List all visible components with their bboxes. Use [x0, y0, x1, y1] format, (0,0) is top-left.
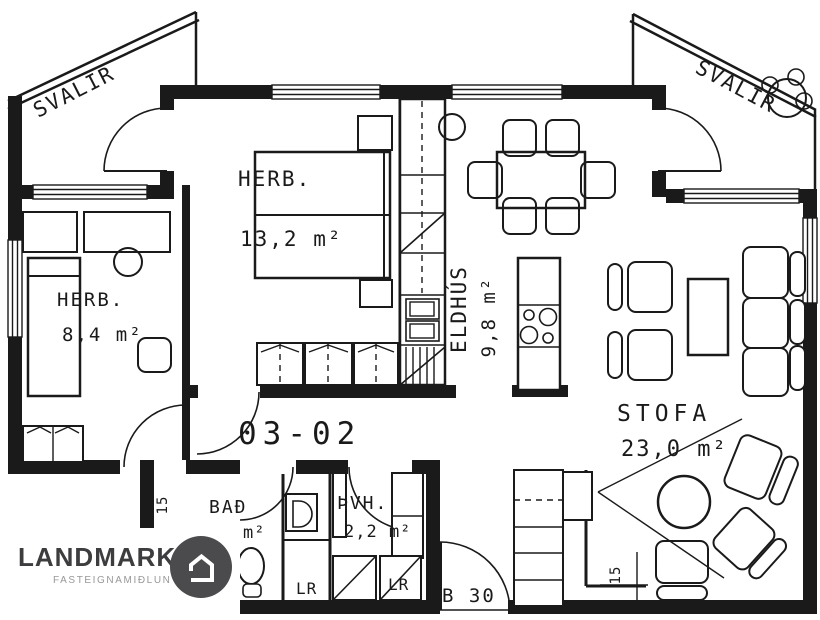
desk [84, 212, 170, 252]
label-bedroom-large: HERB. [238, 167, 311, 191]
label-entrance-door: B 30 [442, 585, 496, 607]
living-room-furniture [598, 247, 805, 612]
label-unit-number: 03-02 [238, 416, 361, 452]
label-laundry: ÞVH. [337, 493, 388, 514]
window [272, 85, 380, 99]
chair [710, 505, 789, 584]
area-bedroom-large: 13,2 m² [240, 227, 343, 251]
floorplan-drawing: SVALIR SVALIR HERB. 13,2 m² HERB. 8,4 m²… [0, 0, 820, 620]
window [33, 185, 147, 199]
label-closet-1: LR [296, 579, 317, 598]
label-balcony-right: SVALIR [692, 55, 781, 117]
door-balcony-left [104, 108, 167, 171]
wardrobe [23, 426, 83, 462]
kitchen-counter [400, 99, 445, 385]
area-laundry: 2,2 m² [344, 522, 411, 542]
wardrobe [354, 343, 398, 385]
dining-chair [503, 120, 536, 156]
wardrobe [257, 343, 303, 385]
closet [333, 556, 376, 600]
dining-set [468, 120, 615, 234]
window [8, 240, 22, 337]
shelf [563, 472, 592, 520]
label-living-room: STOFA [617, 401, 711, 427]
area-bedroom-small: 8,4 m² [62, 324, 143, 346]
window [452, 85, 562, 99]
area-bathroom: m² [243, 523, 265, 543]
label-bedroom-small: HERB. [57, 289, 124, 311]
label-kitchen: ELDHÚS [446, 265, 471, 353]
door-balcony-right [658, 108, 721, 171]
logo-title: LANDMARK [18, 542, 176, 573]
dim-living-room: 15 [608, 566, 624, 585]
armchair [628, 262, 672, 312]
landmark-logo: LANDMARK FASTEIGNAMIÐLUN [0, 528, 240, 614]
chair [138, 338, 171, 372]
house-icon [183, 549, 219, 585]
toilet [238, 548, 264, 584]
sofa [743, 247, 805, 396]
dining-chair [503, 198, 536, 234]
armchair [628, 330, 672, 380]
dining-chair [546, 120, 579, 156]
logo-subtitle: FASTEIGNAMIÐLUN [53, 575, 171, 586]
coffee-table [688, 279, 728, 355]
hall-wardrobe [514, 470, 592, 606]
chair [722, 433, 801, 509]
round-table [658, 476, 710, 528]
nightstand [360, 280, 392, 307]
door-bedroom-small [124, 405, 186, 467]
dining-chair [546, 198, 579, 234]
nightstand [358, 116, 392, 150]
wardrobe [305, 343, 352, 385]
dresser [23, 212, 77, 252]
area-kitchen: 9,8 m² [478, 277, 500, 358]
window [684, 189, 799, 203]
label-closet-2: LR [388, 575, 409, 594]
dim-bathroom-wall: 15 [155, 496, 171, 515]
logo-circle [170, 536, 232, 598]
label-bathroom: BAÐ [209, 497, 248, 518]
floorplan-page: SVALIR SVALIR HERB. 13,2 m² HERB. 8,4 m²… [0, 0, 820, 620]
area-living-room: 23,0 m² [621, 437, 728, 462]
